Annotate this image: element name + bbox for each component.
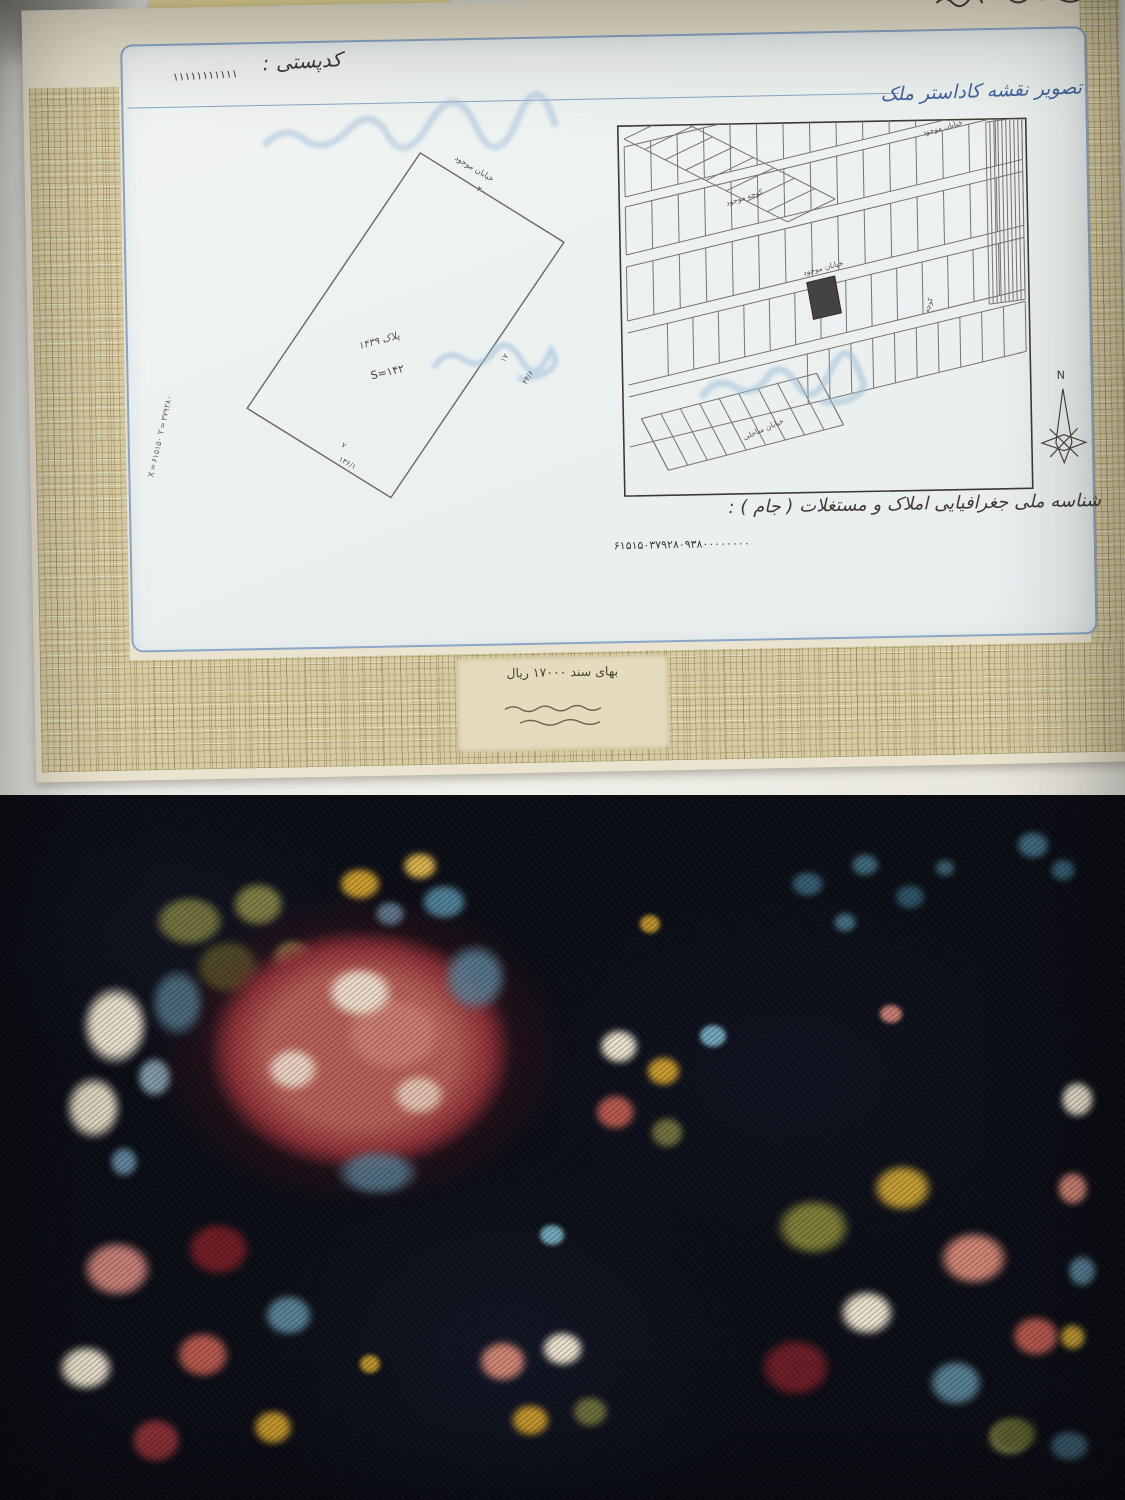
blue-watermark-left-map [433,344,556,380]
bottom-left-floral-cluster [0,1170,390,1500]
speckle-pink-1 [880,1005,902,1023]
speckle-gold-1 [640,915,660,933]
compass-rose [1041,388,1086,463]
blue-leaf-accent-3 [320,1140,435,1205]
cyan-corner-motif [985,795,1105,920]
speckle-gold-2 [360,1355,380,1373]
speckle-teal-1 [700,1025,726,1047]
bottom-mid-motif [420,1290,650,1500]
blue-leaf-accent-1 [430,930,520,1025]
persian-carpet [0,795,1125,1500]
printer-imprint-squiggle [505,705,601,726]
teal-sprig-motif [745,820,995,980]
parcel-outline [242,150,569,500]
bottom-right-motif [940,1380,1125,1500]
north-label: N [1056,369,1064,382]
deed-document: کدپستی : ۱۱۱۱۱۱۱۱۱۱۱ تصویر نقشه کاداستر … [21,0,1125,782]
subject-parcel [807,276,842,320]
blue-watermark-top [263,94,556,151]
right-edge-motifs [1030,1040,1125,1370]
cutoff-handwriting [936,0,1079,7]
cadastre-grid [622,51,1028,471]
speckle-teal-2 [540,1225,564,1245]
mixed-flower-mid [545,985,730,1190]
blue-leaf-accent-2 [140,955,215,1050]
